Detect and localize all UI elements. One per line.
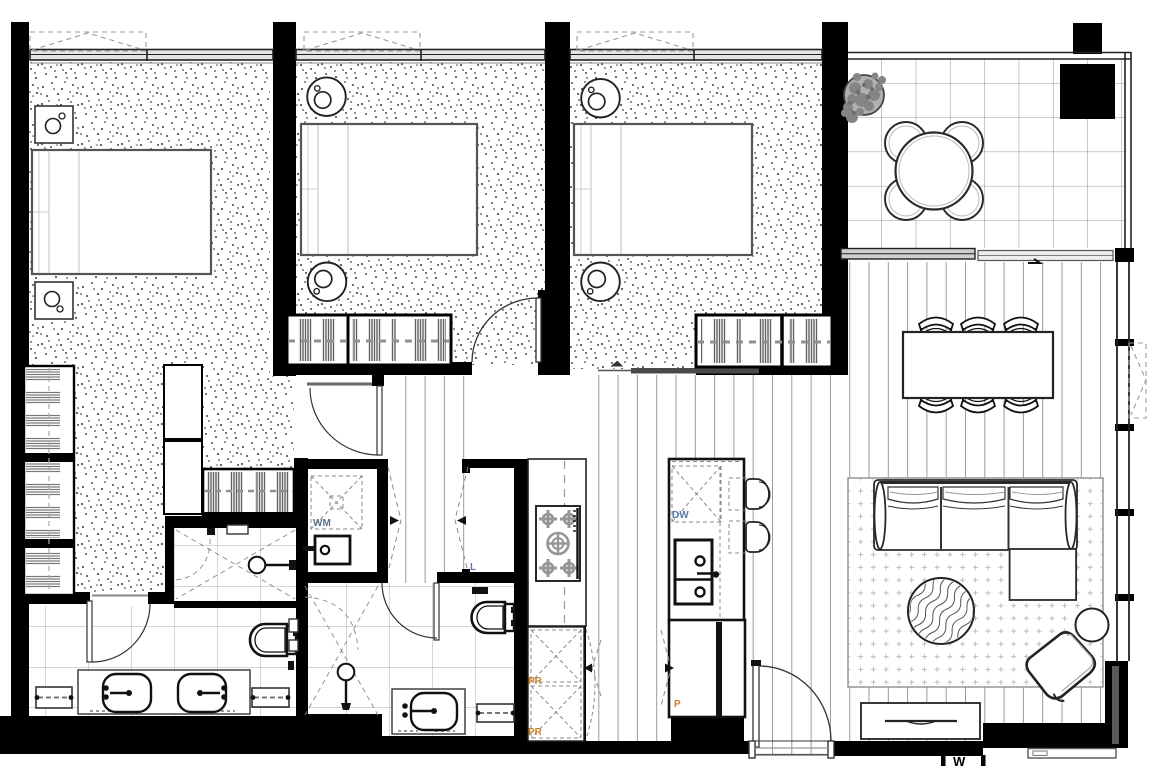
svg-text:PR: PR — [528, 727, 543, 738]
svg-text:W: W — [953, 754, 966, 769]
svg-text:DW: DW — [672, 510, 689, 521]
svg-text:L: L — [470, 562, 476, 573]
svg-text:WM: WM — [313, 518, 331, 529]
svg-text:PR: PR — [528, 676, 543, 687]
svg-text:P: P — [674, 699, 681, 710]
